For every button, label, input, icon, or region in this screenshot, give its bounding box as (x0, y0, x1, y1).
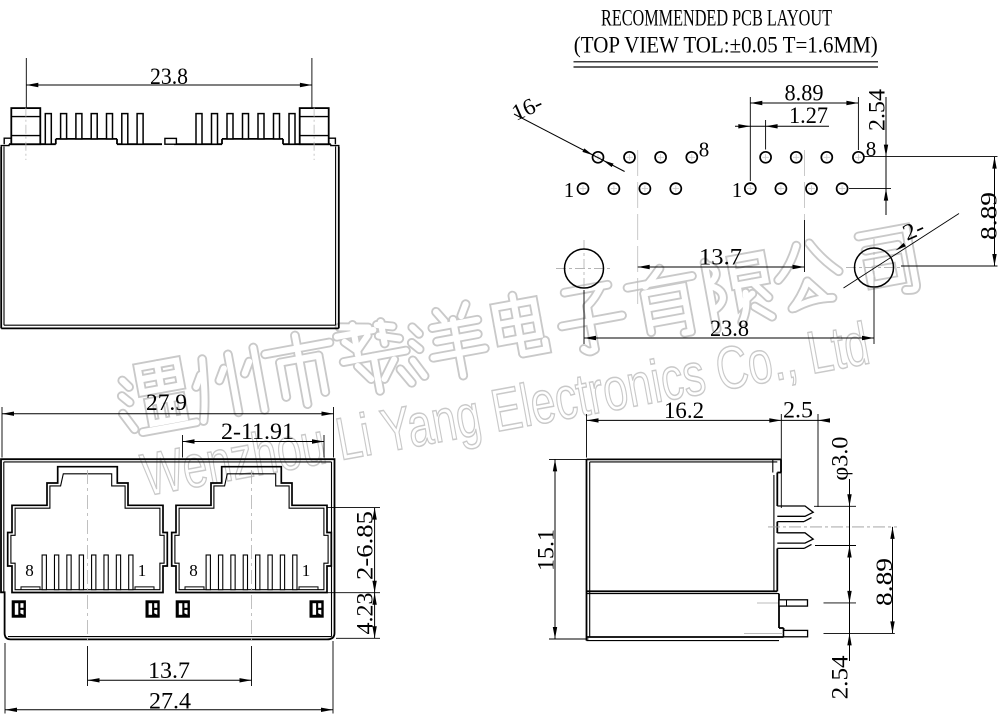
svg-text:23.8: 23.8 (150, 64, 188, 89)
svg-text:2-11.91: 2-11.91 (221, 419, 294, 444)
svg-text:RECOMMENDED PCB LAYOUT: RECOMMENDED PCB LAYOUT (601, 6, 832, 31)
svg-text:8.89: 8.89 (872, 558, 897, 606)
svg-text:27.9: 27.9 (146, 390, 187, 415)
svg-text:1: 1 (564, 178, 575, 202)
svg-text:15.1: 15.1 (534, 529, 559, 571)
svg-text:2.54: 2.54 (865, 88, 890, 131)
svg-text:27.4: 27.4 (149, 689, 192, 714)
svg-text:2.54: 2.54 (828, 655, 853, 700)
svg-text:1: 1 (302, 561, 311, 580)
svg-text:8: 8 (189, 561, 198, 580)
svg-text:φ3.0: φ3.0 (828, 437, 853, 481)
svg-text:8.89: 8.89 (785, 81, 824, 106)
svg-text:13.7: 13.7 (148, 658, 190, 683)
svg-text:8: 8 (25, 561, 34, 580)
svg-text:8.89: 8.89 (977, 192, 1000, 240)
svg-text:2-6.85: 2-6.85 (353, 511, 378, 580)
svg-text:8: 8 (866, 137, 877, 161)
svg-text:1: 1 (732, 178, 743, 202)
svg-text:1.27: 1.27 (789, 103, 828, 128)
svg-text:4.23: 4.23 (353, 593, 378, 635)
svg-text:16.2: 16.2 (664, 398, 704, 423)
svg-text:(TOP VIEW TOL:±0.05 T=1.6MM): (TOP VIEW TOL:±0.05 T=1.6MM) (574, 33, 878, 58)
svg-text:13.7: 13.7 (699, 245, 742, 270)
svg-text:2.5: 2.5 (783, 397, 813, 422)
svg-text:8: 8 (699, 138, 710, 162)
svg-text:1: 1 (138, 561, 147, 580)
svg-text:23.8: 23.8 (710, 316, 749, 341)
